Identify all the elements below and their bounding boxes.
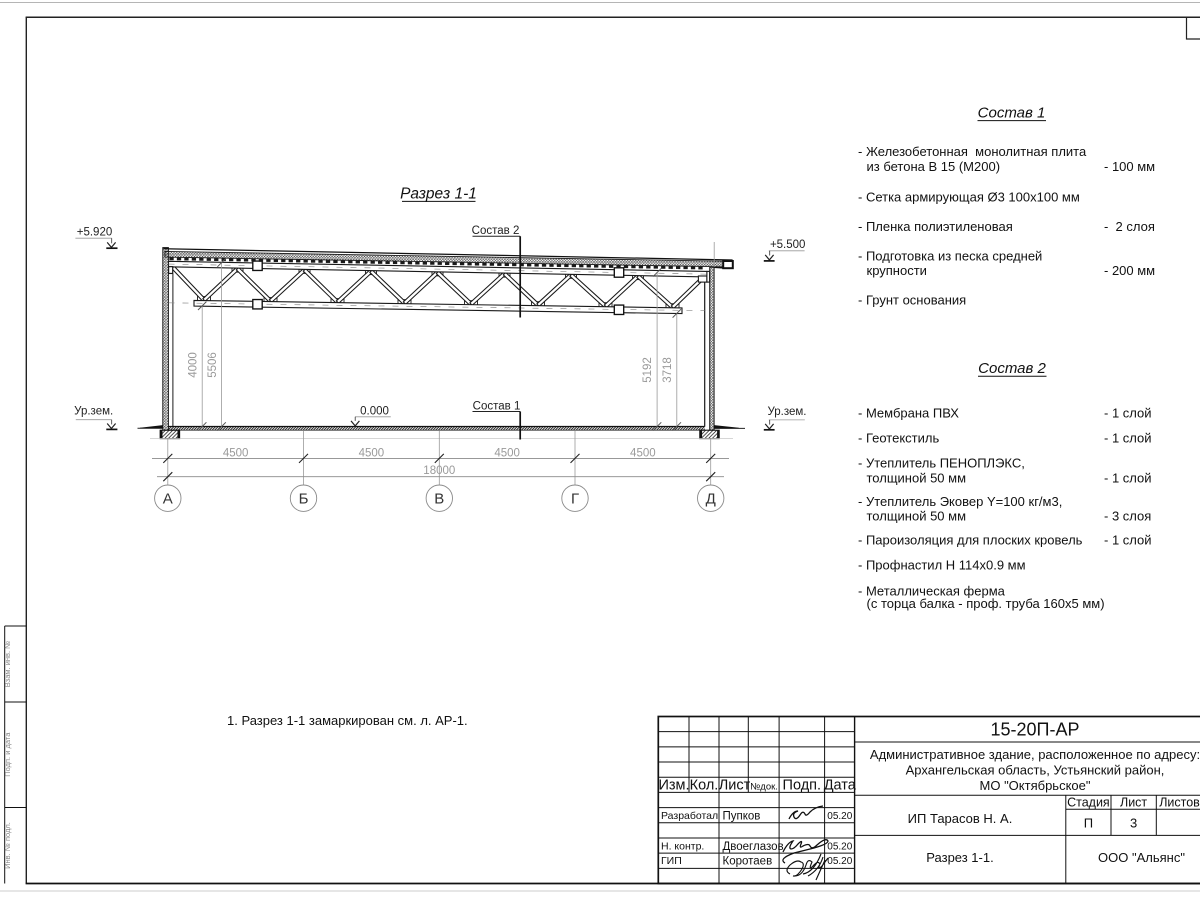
- svg-text:3: 3: [1130, 815, 1137, 830]
- svg-text:Состав 2: Состав 2: [472, 225, 520, 237]
- svg-text:Подп.: Подп.: [783, 777, 822, 793]
- svg-text:- 1 слой: - 1 слой: [1104, 406, 1152, 421]
- svg-text:3718: 3718: [662, 357, 674, 383]
- svg-text:ООО "Альянс": ООО "Альянс": [1098, 850, 1185, 865]
- svg-text:- 1 слой: - 1 слой: [1104, 533, 1152, 548]
- svg-text:Состав 2: Состав 2: [978, 360, 1046, 377]
- svg-text:Изм.: Изм.: [658, 777, 689, 793]
- svg-text:Ур.зем.: Ур.зем.: [767, 406, 806, 418]
- svg-text:- Мембрана ПВХ: - Мембрана ПВХ: [858, 406, 959, 421]
- svg-text:ГИП: ГИП: [661, 855, 682, 867]
- svg-text:Коротаев: Коротаев: [723, 855, 773, 867]
- svg-text:- 1 слой: - 1 слой: [1104, 431, 1152, 446]
- svg-text:5506: 5506: [207, 352, 219, 378]
- svg-text:- Сетка армирующая Ø3 100х100: - Сетка армирующая Ø3 100х100 мм: [858, 189, 1080, 204]
- svg-text:- Подготовка из песка средней: - Подготовка из песка средней: [858, 249, 1042, 264]
- svg-text:В: В: [434, 490, 444, 507]
- svg-text:0.000: 0.000: [360, 405, 389, 417]
- svg-text:Взам. инв. №: Взам. инв. №: [3, 641, 12, 687]
- svg-text:Двоеглазов: Двоеглазов: [723, 841, 784, 853]
- svg-text:МО "Октябрьское": МО "Октябрьское": [980, 778, 1091, 793]
- svg-text:- 200 мм: - 200 мм: [1104, 263, 1155, 278]
- svg-text:толщиной 50 мм: толщиной 50 мм: [867, 471, 967, 486]
- svg-text:05.20: 05.20: [827, 856, 852, 867]
- svg-text:П: П: [1084, 815, 1093, 830]
- svg-text:Б: Б: [299, 490, 309, 507]
- svg-text:- 1 слой: - 1 слой: [1104, 471, 1152, 486]
- svg-text:Лист: Лист: [719, 777, 751, 793]
- svg-text:Лист: Лист: [1120, 795, 1147, 809]
- svg-text:Административное здание, распо: Административное здание, расположенное п…: [870, 747, 1200, 762]
- svg-text:- Железобетонная монолитная п: - Железобетонная монолитная плита: [858, 144, 1087, 159]
- svg-text:толщиной 50 мм: толщиной 50 мм: [867, 509, 967, 524]
- svg-text:Листов: Листов: [1159, 795, 1200, 809]
- svg-text:- Пленка полиэтиленовая: - Пленка полиэтиленовая: [858, 219, 1013, 234]
- svg-text:Архангельская область, Устьянс: Архангельская область, Устьянский район,: [906, 762, 1165, 777]
- svg-text:05.20: 05.20: [827, 841, 852, 852]
- svg-text:4500: 4500: [494, 448, 520, 460]
- svg-text:Состав 1: Состав 1: [473, 400, 521, 412]
- svg-text:- Профнастил Н 114х0.9 мм: - Профнастил Н 114х0.9 мм: [858, 558, 1026, 573]
- svg-text:Разрез 1-1: Разрез 1-1: [400, 185, 477, 202]
- svg-text:Г: Г: [571, 490, 579, 507]
- svg-text:18000: 18000: [423, 465, 455, 477]
- svg-text:- Утеплитель ПЕНОПЛЭКС,: - Утеплитель ПЕНОПЛЭКС,: [858, 456, 1025, 471]
- svg-text:+5.500: +5.500: [770, 239, 806, 251]
- svg-text:Пупков: Пупков: [723, 810, 761, 822]
- svg-text:№док.: №док.: [750, 781, 778, 792]
- svg-text:Стадия: Стадия: [1067, 795, 1110, 809]
- svg-text:из бетона В 15 (М200): из бетона В 15 (М200): [867, 159, 1001, 174]
- svg-text:Подп. и дата: Подп. и дата: [3, 732, 12, 777]
- svg-text:- Грунт основания: - Грунт основания: [858, 293, 966, 308]
- svg-text:- 100 мм: - 100 мм: [1104, 159, 1155, 174]
- svg-text:Дата: Дата: [824, 777, 857, 793]
- svg-text:- Геотекстиль: - Геотекстиль: [858, 431, 939, 446]
- svg-text:Кол.: Кол.: [690, 777, 719, 793]
- svg-text:Разработал: Разработал: [661, 810, 718, 822]
- svg-text:А: А: [163, 490, 173, 507]
- svg-text:Инв. № подл.: Инв. № подл.: [3, 822, 12, 869]
- svg-text:5192: 5192: [642, 357, 654, 383]
- svg-text:Разрез 1-1.: Разрез 1-1.: [926, 850, 993, 865]
- svg-text:4000: 4000: [187, 352, 199, 378]
- svg-text:15-20П-АР: 15-20П-АР: [991, 719, 1080, 739]
- svg-text:- Пароизоляция для плоских кро: - Пароизоляция для плоских кровель: [858, 533, 1083, 548]
- svg-text:ИП Тарасов Н. А.: ИП Тарасов Н. А.: [908, 811, 1013, 826]
- svg-text:4500: 4500: [223, 448, 249, 460]
- svg-text:Д: Д: [706, 490, 716, 507]
- svg-text:+5.920: +5.920: [77, 227, 113, 239]
- svg-text:Ур.зем.: Ур.зем.: [74, 405, 113, 417]
- svg-text:- 3 слоя: - 3 слоя: [1104, 509, 1151, 524]
- svg-text:1. Разрез 1-1 замаркирован см.: 1. Разрез 1-1 замаркирован см. л. АР-1.: [227, 713, 468, 728]
- svg-text:4500: 4500: [630, 448, 656, 460]
- svg-text:- Утеплитель Эковер Y=100 кг/м: - Утеплитель Эковер Y=100 кг/м3,: [858, 494, 1062, 509]
- svg-text:крупности: крупности: [867, 263, 927, 278]
- svg-text:(с торца балка - проф. труба 1: (с торца балка - проф. труба 160х5 мм): [867, 596, 1105, 611]
- svg-text:- 2 слоя: - 2 слоя: [1104, 219, 1155, 234]
- svg-text:4500: 4500: [359, 448, 385, 460]
- svg-text:Н. контр.: Н. контр.: [661, 840, 704, 852]
- svg-text:Состав 1: Состав 1: [978, 105, 1046, 122]
- svg-text:05.20: 05.20: [827, 811, 852, 822]
